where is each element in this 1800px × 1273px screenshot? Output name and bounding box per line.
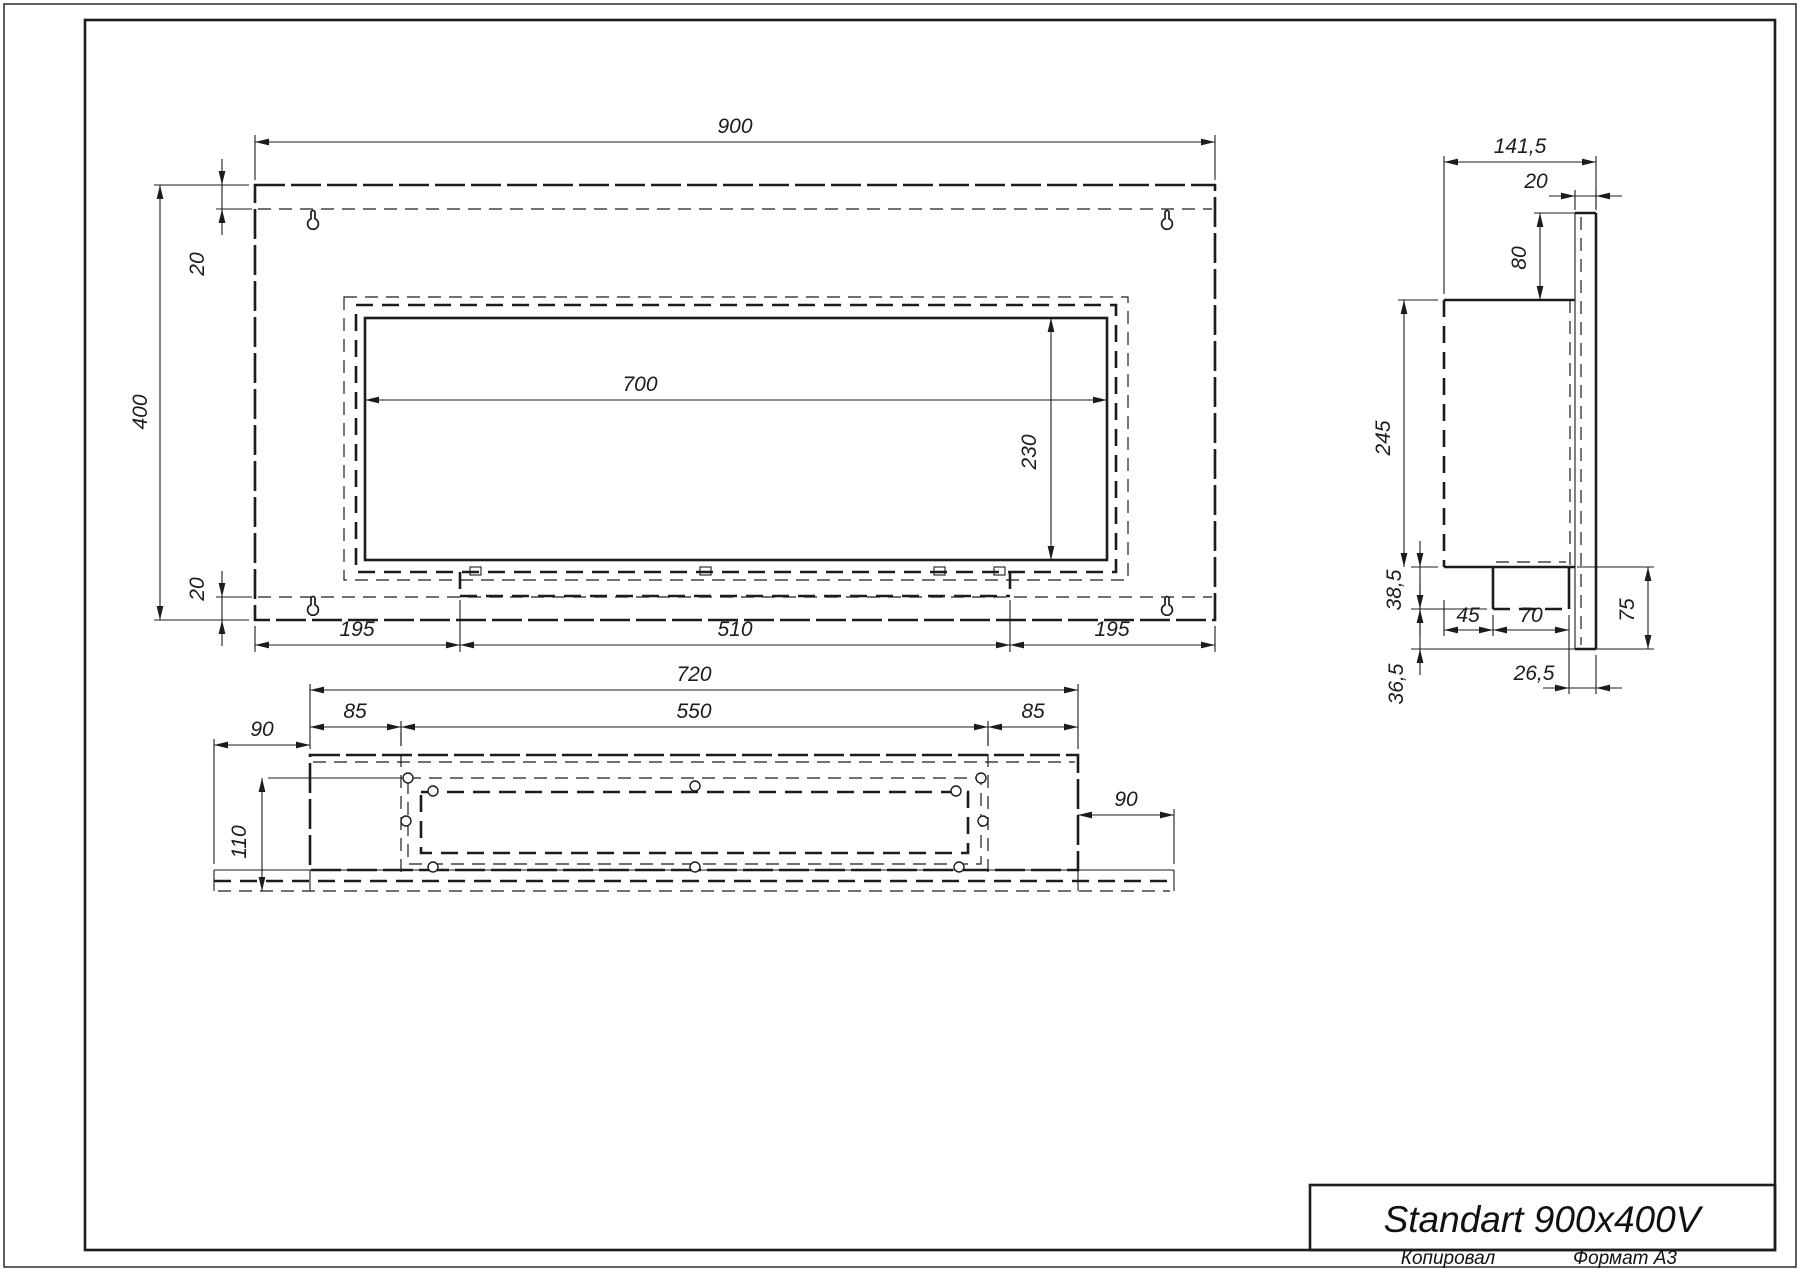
dimension-arrow bbox=[296, 742, 310, 749]
dimension-arrow bbox=[259, 877, 266, 891]
dimension-label: 141,5 bbox=[1494, 135, 1547, 158]
dimension-arrow bbox=[1201, 139, 1215, 146]
drawing-layer: 9004002020700230195510195141,5208024538,… bbox=[129, 115, 1654, 891]
dimension-arrow bbox=[1493, 627, 1507, 634]
dimension-label: 700 bbox=[622, 373, 657, 396]
outline-rect bbox=[365, 318, 1107, 560]
dimension-arrow bbox=[1537, 286, 1544, 300]
dimension-label: 36,5 bbox=[1385, 663, 1408, 704]
dimension-arrow bbox=[401, 724, 415, 731]
dimension-arrow bbox=[1596, 193, 1610, 200]
screw-hole bbox=[954, 862, 964, 872]
dimension-arrow bbox=[1401, 553, 1408, 567]
dimension-arrow bbox=[157, 606, 164, 620]
dimension-arrow bbox=[988, 724, 1002, 731]
footer-format-label: Формат А3 bbox=[1573, 1248, 1677, 1269]
dimension-arrow bbox=[1010, 642, 1024, 649]
dimension-arrow bbox=[255, 139, 269, 146]
dimension-arrow bbox=[1555, 685, 1569, 692]
footer-copied-label: Копировал bbox=[1401, 1248, 1496, 1269]
screw-hole bbox=[403, 773, 413, 783]
dimension-arrow bbox=[1555, 627, 1569, 634]
dimension-arrow bbox=[1048, 546, 1055, 560]
dimension-arrow bbox=[1064, 724, 1078, 731]
keyhole-slot-icon bbox=[308, 597, 319, 616]
hidden-rect-thick bbox=[421, 792, 968, 853]
screw-hole bbox=[428, 862, 438, 872]
dimension-arrow bbox=[1417, 595, 1424, 609]
dimension-label: 70 bbox=[1519, 604, 1543, 627]
dimension-label: 90 bbox=[250, 718, 274, 741]
dimension-label: 110 bbox=[228, 825, 251, 859]
paper-border bbox=[4, 4, 1796, 1267]
dimension-label: 20 bbox=[1523, 170, 1548, 193]
screw-hole bbox=[976, 773, 986, 783]
dimension-label: 20 bbox=[186, 577, 209, 602]
dimension-arrow bbox=[446, 642, 460, 649]
keyhole-slot-icon bbox=[1162, 597, 1173, 616]
dimension-arrow bbox=[1561, 193, 1575, 200]
dimension-label: 45 bbox=[1456, 604, 1480, 627]
dimension-arrow bbox=[219, 171, 226, 185]
technical-drawing-canvas: 9004002020700230195510195141,5208024538,… bbox=[0, 0, 1800, 1273]
dimension-label: 510 bbox=[717, 618, 752, 641]
screw-hole bbox=[428, 786, 438, 796]
dimension-label: 900 bbox=[717, 115, 752, 138]
dimension-arrow bbox=[1537, 213, 1544, 227]
dimension-label: 245 bbox=[1372, 420, 1395, 456]
dimension-arrow bbox=[1645, 635, 1652, 649]
dimension-label: 90 bbox=[1114, 788, 1138, 811]
hidden-rect-thin bbox=[344, 297, 1128, 580]
dimension-arrow bbox=[1417, 649, 1424, 663]
dimension-arrow bbox=[1582, 159, 1596, 166]
dimension-label: 75 bbox=[1616, 598, 1639, 622]
screw-hole bbox=[690, 862, 700, 872]
dimension-label: 230 bbox=[1018, 434, 1041, 470]
drawing-sheet: 9004002020700230195510195141,5208024538,… bbox=[0, 0, 1800, 1273]
dimension-arrow bbox=[1064, 687, 1078, 694]
dimension-label: 85 bbox=[1021, 700, 1045, 723]
dimension-label: 195 bbox=[339, 618, 374, 641]
drawing-title: Standart 900x400V bbox=[1384, 1199, 1704, 1240]
dimension-arrow bbox=[1401, 300, 1408, 314]
dimension-arrow bbox=[310, 724, 324, 731]
dimension-arrow bbox=[255, 642, 269, 649]
dimension-label: 195 bbox=[1094, 618, 1129, 641]
dimension-arrow bbox=[460, 642, 474, 649]
dimension-label: 720 bbox=[676, 663, 711, 686]
keyhole-slot-icon bbox=[1162, 211, 1173, 230]
hidden-rect-thick bbox=[356, 305, 1116, 572]
dimension-label: 38,5 bbox=[1383, 569, 1406, 610]
dimension-arrow bbox=[1444, 627, 1458, 634]
dimension-label: 26,5 bbox=[1513, 662, 1555, 685]
dimension-arrow bbox=[219, 209, 226, 223]
panel-outline-rect bbox=[255, 185, 1215, 620]
screw-hole bbox=[401, 816, 411, 826]
dimension-arrow bbox=[219, 583, 226, 597]
dimension-arrow bbox=[1479, 627, 1493, 634]
dimension-arrow bbox=[214, 742, 228, 749]
screw-hole bbox=[978, 816, 988, 826]
dimension-arrow bbox=[219, 620, 226, 634]
dimension-arrow bbox=[1444, 159, 1458, 166]
dimension-arrow bbox=[974, 724, 988, 731]
dimension-arrow bbox=[996, 642, 1010, 649]
dimension-arrow bbox=[259, 778, 266, 792]
dimension-arrow bbox=[387, 724, 401, 731]
dimension-arrow bbox=[1645, 567, 1652, 581]
dimension-label: 85 bbox=[343, 700, 367, 723]
dimension-arrow bbox=[157, 185, 164, 199]
dimension-arrow bbox=[310, 687, 324, 694]
title-block: Standart 900x400V bbox=[1310, 1185, 1775, 1250]
dimension-label: 400 bbox=[129, 394, 152, 429]
dimension-label: 550 bbox=[676, 700, 711, 723]
dimension-arrow bbox=[1417, 553, 1424, 567]
dimension-label: 20 bbox=[186, 252, 209, 277]
dimension-arrow bbox=[1048, 318, 1055, 332]
keyhole-slot-icon bbox=[308, 211, 319, 230]
dimension-arrow bbox=[1078, 812, 1092, 819]
dimension-arrow bbox=[1160, 812, 1174, 819]
screw-hole bbox=[690, 781, 700, 791]
dimension-arrow bbox=[365, 397, 379, 404]
dimension-arrow bbox=[1093, 397, 1107, 404]
dimension-label: 80 bbox=[1508, 246, 1531, 270]
dimension-arrow bbox=[1201, 642, 1215, 649]
screw-hole bbox=[951, 786, 961, 796]
dimension-arrow bbox=[1596, 685, 1610, 692]
